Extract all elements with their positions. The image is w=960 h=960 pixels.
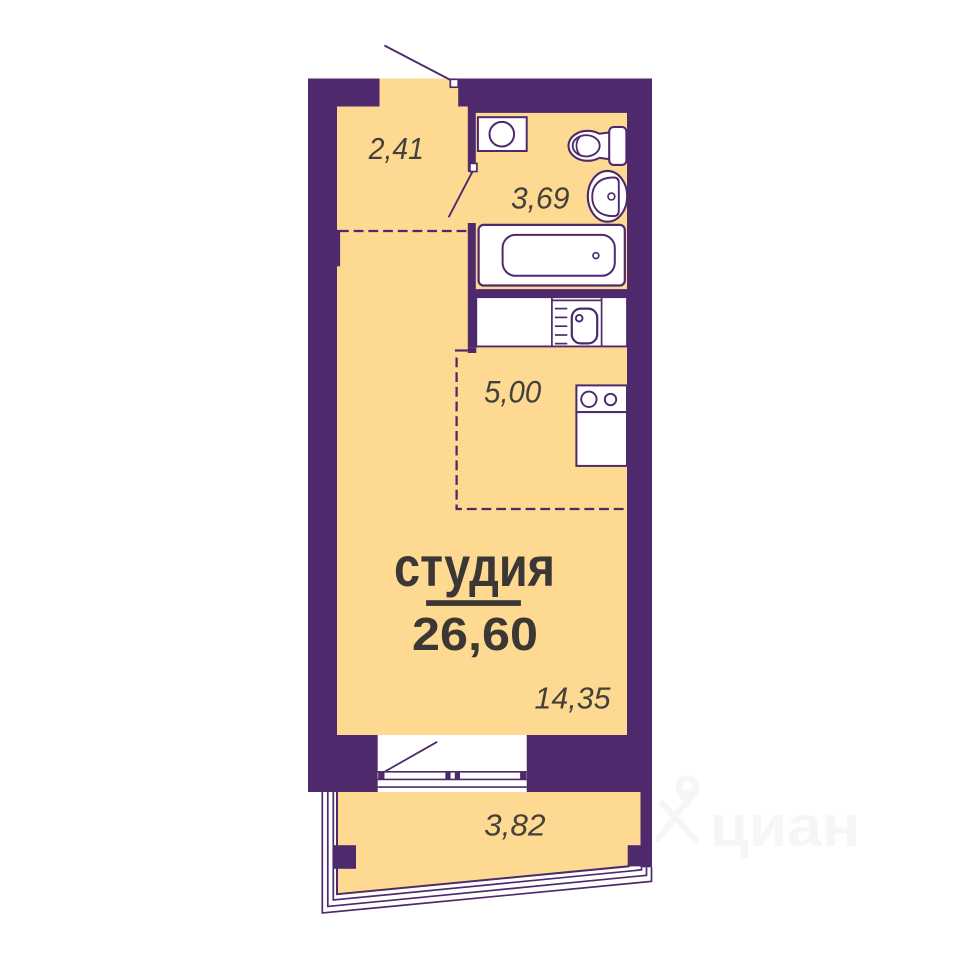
svg-text:3,82: 3,82 (484, 807, 545, 842)
svg-text:14,35: 14,35 (535, 681, 612, 716)
svg-text:студия: студия (394, 535, 555, 598)
svg-text:26,60: 26,60 (412, 608, 538, 660)
svg-text:2,41: 2,41 (368, 131, 424, 166)
svg-text:циан: циан (710, 794, 860, 859)
svg-text:3,69: 3,69 (511, 180, 569, 215)
svg-text:5,00: 5,00 (484, 373, 542, 409)
